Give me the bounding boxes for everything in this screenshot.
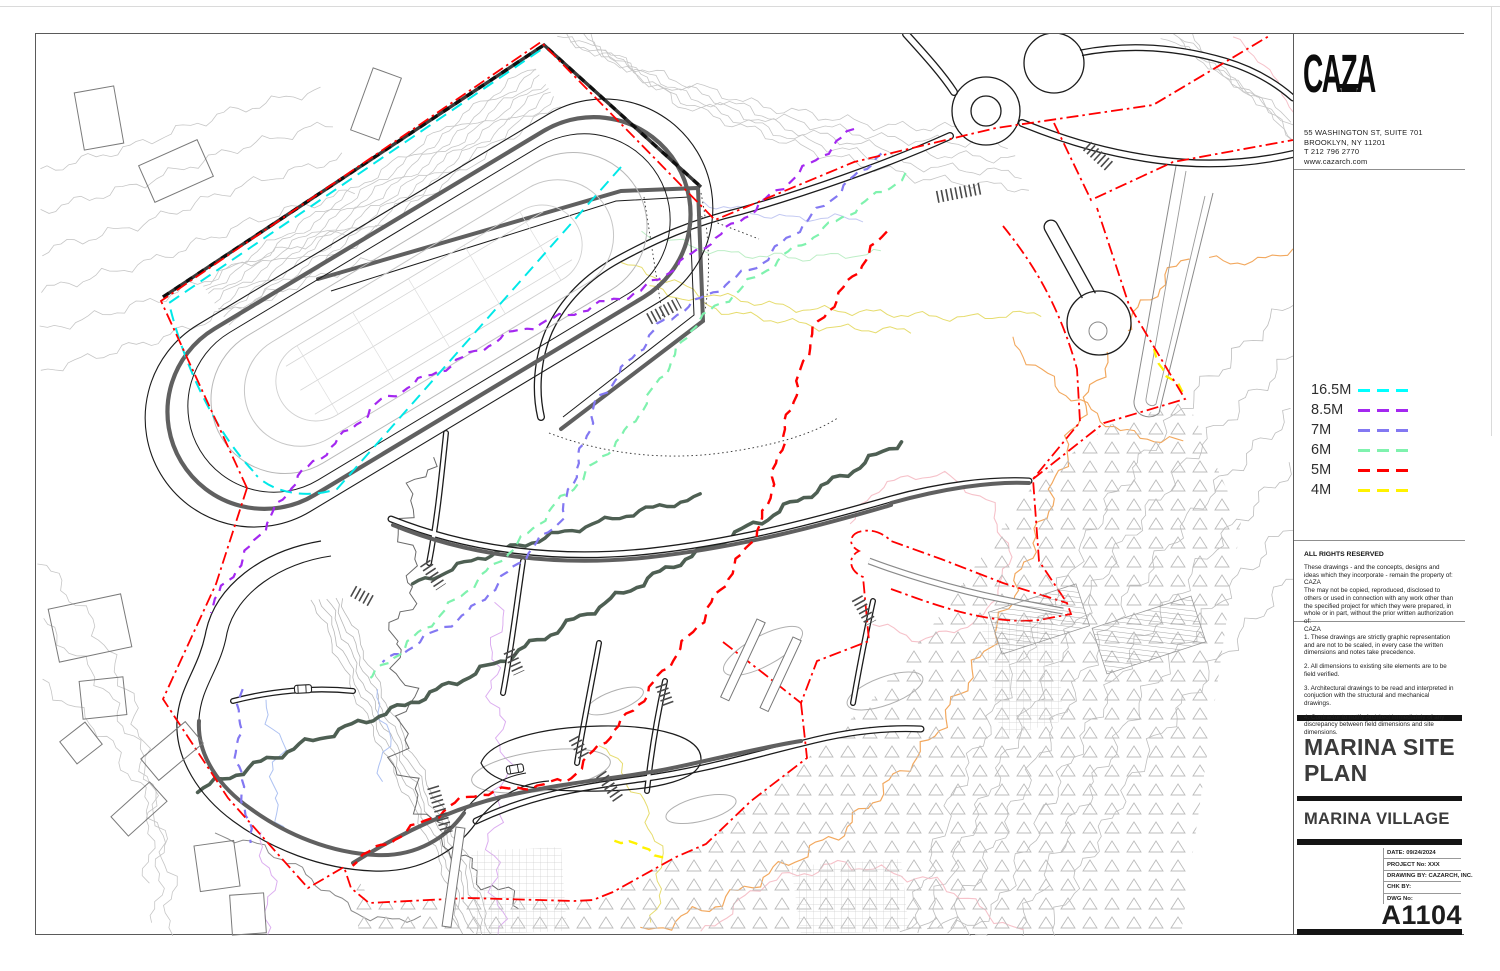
legend-dash-swatch [1358,409,1410,412]
rights-title: ALL RIGHTS RESERVED [1304,551,1455,558]
site-plan-drawing [36,34,1294,936]
issue-info-row: PROJECT No: XXX [1384,859,1461,870]
firm-address-line: BROOKLYN, NY 11201 [1304,138,1423,148]
project-name: MARINA VILLAGE [1304,810,1465,829]
legend-item: 6M [1311,440,1410,460]
title-block: CAZA 55 WASHINGTON ST, SUITE 701BROOKLYN… [1293,34,1465,934]
legend-label: 5M [1311,462,1358,478]
legend-dash-swatch [1358,389,1410,392]
legend-item: 8.5M [1311,400,1410,420]
legend-label: 4M [1311,482,1358,498]
firm-address: 55 WASHINGTON ST, SUITE 701BROOKLYN, NY … [1304,128,1423,166]
page-title: MARINA SITE PLAN [1304,734,1455,786]
project-name-box: MARINA VILLAGE [1294,801,1465,839]
legend-list: 16.5M8.5M7M6M5M4M [1311,380,1410,500]
legend-dash-swatch [1358,449,1410,452]
legend-dash-swatch [1358,469,1410,472]
legend-label: 8.5M [1311,402,1358,418]
window-edge-right [1491,6,1492,436]
legend-item: 5M [1311,460,1410,480]
firm-identity-box: CAZA 55 WASHINGTON ST, SUITE 701BROOKLYN… [1294,34,1465,170]
legend-label: 7M [1311,422,1358,438]
issue-info-table: DATE: 09/24/2024PROJECT No: XXXDRAWING B… [1383,848,1461,904]
rights-paragraph: CAZA [1304,579,1455,587]
legend-box: 16.5M8.5M7M6M5M4M [1294,170,1465,541]
legend-label: 16.5M [1311,382,1358,398]
issue-info-row: DRAWING BY: CAZARCH, INC. [1384,871,1461,882]
rights-paragraph: The may not be copied, reproduced, discl… [1304,587,1455,626]
window-edge-top [0,6,1500,7]
general-note: 1. These drawings are strictly graphic r… [1304,634,1455,657]
sheet-frame: CAZA 55 WASHINGTON ST, SUITE 701BROOKLYN… [35,33,1464,935]
issue-info-row: DATE: 09/24/2024 [1384,848,1461,859]
issue-info-row: CHK BY: [1384,882,1461,893]
general-note: 2. All dimensions to existing site eleme… [1304,663,1455,678]
issue-info-box: DATE: 09/24/2024PROJECT No: XXXDRAWING B… [1294,845,1465,929]
drawing-number: A1104 [1381,900,1462,931]
legend-dash-swatch [1358,429,1410,432]
legend-label: 6M [1311,442,1358,458]
legend-item: 7M [1311,420,1410,440]
firm-address-line: www.cazarch.com [1304,157,1423,167]
legend-dash-swatch [1358,489,1410,492]
rights-paragraph: These drawings - and the concepts, desig… [1304,564,1455,579]
general-note: 3. Architectural drawings to be read and… [1304,685,1455,708]
drawing-title-box: MARINA SITE PLAN [1294,721,1465,796]
rights-box: ALL RIGHTS RESERVED These drawings - and… [1294,541,1465,622]
caza-logo: CAZA [1303,44,1375,106]
legend-item: 16.5M [1311,380,1410,400]
legend-item: 4M [1311,480,1410,500]
notes-box: 1. These drawings are strictly graphic r… [1294,622,1465,715]
firm-address-line: 55 WASHINGTON ST, SUITE 701 [1304,128,1423,138]
firm-address-line: T 212 796 2770 [1304,147,1423,157]
